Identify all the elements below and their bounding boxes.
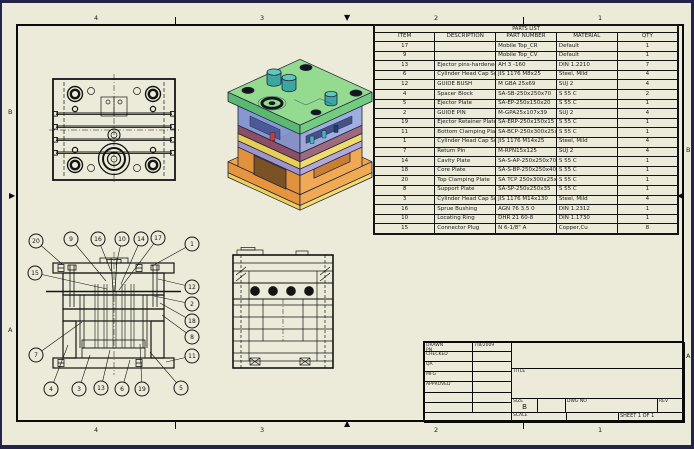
svg-text:17: 17 — [154, 235, 162, 242]
front-section-view: 2091610141711512218811743136195 — [20, 225, 216, 405]
zone-label-left-a: A — [8, 326, 12, 334]
rev-cell: REV — [657, 398, 685, 413]
zone-label-bottom-2: 2 — [434, 426, 438, 434]
svg-text:6: 6 — [120, 386, 124, 393]
zone-label-top-2: 2 — [434, 14, 438, 22]
zone-tick — [523, 17, 524, 24]
zone-label-left-b: B — [8, 108, 12, 116]
sheet-cell: SHEET 1 OF 1 — [618, 412, 685, 423]
isometric-view — [210, 52, 390, 212]
zone-tick — [175, 422, 176, 429]
drawing-sheet: 4 3 2 1 4 3 2 1 B A B A ▼ ▲ ▶ ◀ PARTS LI… — [0, 0, 694, 449]
zone-label-bottom-1: 1 — [598, 426, 602, 434]
svg-text:16: 16 — [94, 236, 102, 243]
svg-text:7: 7 — [34, 352, 38, 359]
svg-text:15: 15 — [31, 270, 39, 277]
svg-text:13: 13 — [97, 385, 105, 392]
zone-tick — [523, 422, 524, 429]
rev-label: REV — [658, 399, 684, 405]
zone-label-bottom-3: 3 — [260, 426, 264, 434]
side-section-view — [225, 243, 343, 383]
empty-cell — [424, 412, 512, 423]
svg-text:12: 12 — [188, 284, 196, 291]
size-value: B — [512, 404, 537, 412]
fold-mark-icon: ▶ — [9, 192, 15, 200]
approved-label: APPROVED — [425, 382, 472, 388]
parts-list-table: PARTS LISTITEMDESCRIPTIONPART NUMBERMATE… — [373, 24, 679, 235]
title-block: DRAWN PN 7/8/2009 CHECKED QA MFG APPROVE… — [423, 341, 684, 422]
zone-label-top-1: 1 — [598, 14, 602, 22]
svg-text:11: 11 — [188, 353, 196, 360]
svg-text:14: 14 — [137, 236, 145, 243]
title-box: TITLE — [511, 368, 685, 399]
drawn-date-value: 7/8/2009 — [473, 343, 511, 349]
plan-view — [45, 70, 185, 185]
scale-cell: SCALE — [511, 412, 567, 423]
svg-text:10: 10 — [118, 236, 126, 243]
fscm-cell — [537, 398, 566, 413]
company-box — [511, 342, 685, 369]
dwg-no-label: DWG NO — [566, 399, 657, 405]
empty-cell — [566, 412, 619, 423]
zone-label-top-4: 4 — [94, 14, 98, 22]
svg-text:2: 2 — [190, 301, 194, 308]
svg-text:8: 8 — [190, 334, 194, 341]
zone-label-right-a: A — [686, 352, 690, 360]
size-cell: SIZE B — [511, 398, 538, 413]
title-label: TITLE — [512, 369, 684, 375]
checked-label: CHECKED — [425, 352, 472, 358]
svg-text:4: 4 — [49, 386, 53, 393]
dwg-no-cell: DWG NO — [565, 398, 658, 413]
mfg-label: MFG — [425, 372, 472, 378]
zone-label-top-3: 3 — [260, 14, 264, 22]
zone-label-bottom-4: 4 — [94, 426, 98, 434]
zone-label-right-b: B — [686, 146, 690, 154]
zone-tick — [175, 17, 176, 24]
fold-mark-icon: ▼ — [344, 14, 350, 22]
sheet-text: SHEET 1 OF 1 — [619, 413, 684, 420]
svg-text:5: 5 — [179, 385, 183, 392]
balloon-callouts: 2091610141711512218811743136195 — [28, 231, 199, 396]
svg-text:19: 19 — [138, 386, 146, 393]
svg-text:1: 1 — [190, 241, 194, 248]
qa-label: QA — [425, 362, 472, 368]
scale-label: SCALE — [512, 413, 566, 419]
svg-text:9: 9 — [69, 236, 73, 243]
svg-text:18: 18 — [188, 318, 196, 325]
svg-text:20: 20 — [32, 238, 40, 245]
svg-text:3: 3 — [77, 386, 81, 393]
